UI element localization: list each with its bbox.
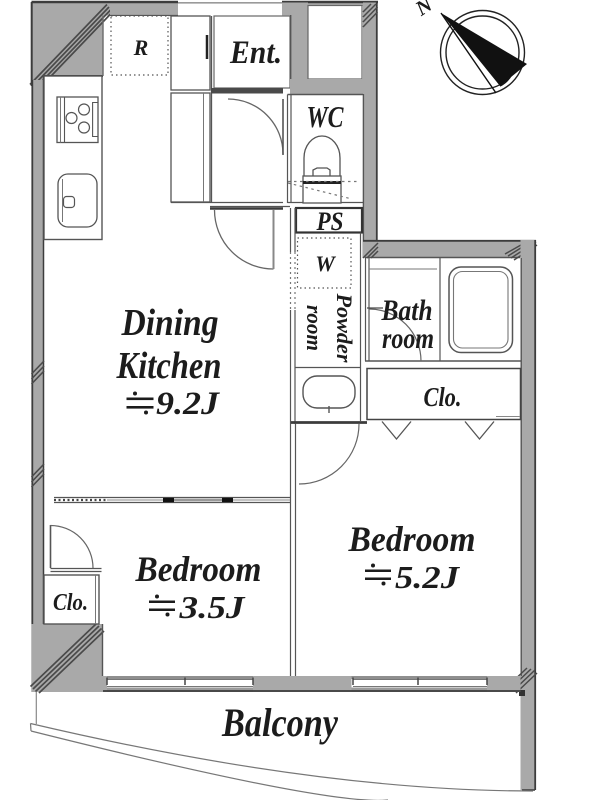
svg-text:Kitchen: Kitchen	[116, 345, 222, 387]
svg-text:3.5J: 3.5J	[178, 589, 245, 625]
svg-text:Clo.: Clo.	[53, 590, 88, 616]
svg-text:W: W	[315, 251, 336, 276]
svg-text:PS: PS	[316, 207, 344, 236]
svg-text:Bedroom: Bedroom	[135, 549, 262, 589]
svg-text:room: room	[382, 322, 434, 355]
svg-text:N: N	[410, 0, 437, 21]
svg-text:Bedroom: Bedroom	[348, 519, 476, 559]
svg-text:Clo.: Clo.	[424, 382, 462, 412]
svg-text:5.2J: 5.2J	[395, 559, 460, 595]
svg-text:room: room	[302, 305, 327, 351]
svg-text:Dining: Dining	[121, 302, 219, 344]
svg-text:Ent.: Ent.	[229, 35, 282, 71]
svg-text:Balcony: Balcony	[221, 700, 338, 745]
svg-text:R: R	[133, 35, 149, 60]
svg-text:9.2J: 9.2J	[156, 386, 221, 422]
svg-text:WC: WC	[307, 99, 344, 134]
svg-text:Powder: Powder	[332, 292, 357, 362]
